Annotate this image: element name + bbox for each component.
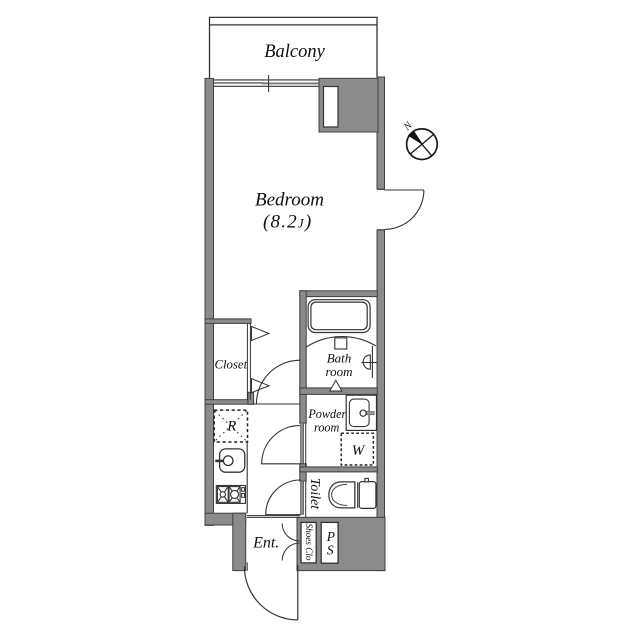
- svg-text:Ent.: Ent.: [252, 535, 279, 552]
- svg-text:S: S: [327, 543, 334, 558]
- svg-text:Toilet: Toilet: [307, 478, 322, 510]
- svg-text:Balcony: Balcony: [264, 42, 325, 62]
- svg-text:(8.2J): (8.2J): [263, 211, 312, 232]
- svg-text:Powder: Powder: [307, 407, 346, 421]
- svg-text:R: R: [226, 418, 236, 434]
- svg-text:W: W: [352, 443, 366, 459]
- svg-text:Closet: Closet: [214, 357, 247, 371]
- svg-text:room: room: [326, 364, 353, 379]
- svg-text:room: room: [314, 420, 339, 434]
- svg-text:Shoes Clo: Shoes Clo: [304, 523, 314, 560]
- svg-text:Bedroom: Bedroom: [255, 190, 324, 211]
